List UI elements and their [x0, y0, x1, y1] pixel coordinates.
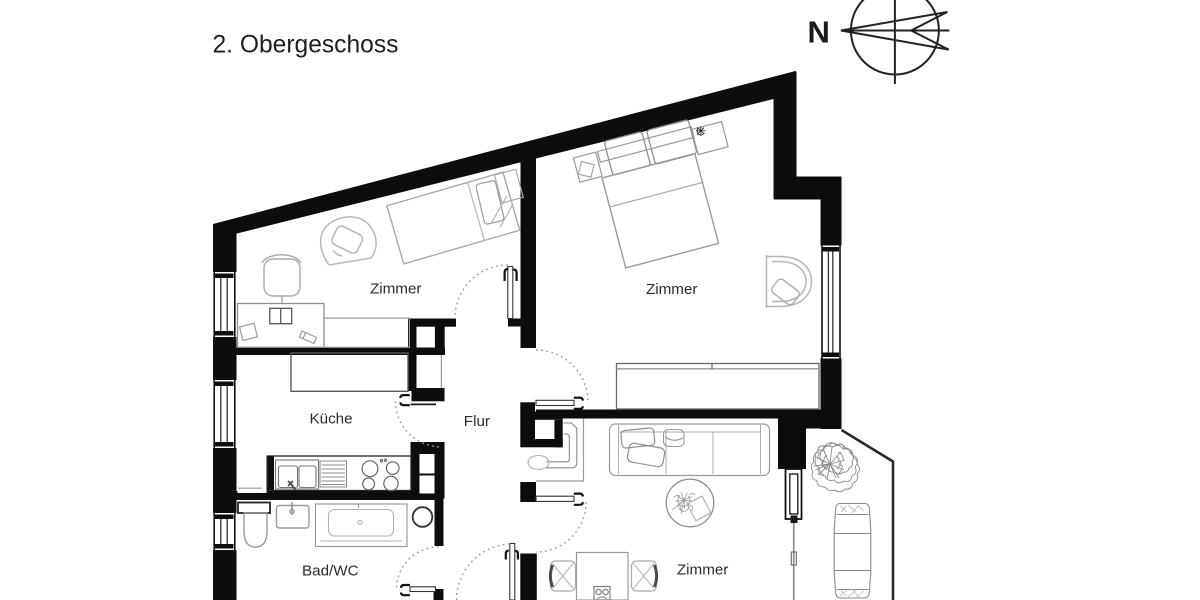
svg-text:2. Obergeschoss: 2. Obergeschoss: [213, 31, 399, 58]
svg-text:Zimmer: Zimmer: [370, 281, 421, 298]
svg-text:Zimmer: Zimmer: [646, 281, 697, 298]
svg-text:N: N: [808, 15, 830, 50]
svg-text:Flur: Flur: [464, 413, 490, 430]
svg-text:Zimmer: Zimmer: [677, 561, 728, 578]
svg-text:Bad/WC: Bad/WC: [302, 562, 359, 579]
svg-text:Küche: Küche: [310, 411, 353, 428]
